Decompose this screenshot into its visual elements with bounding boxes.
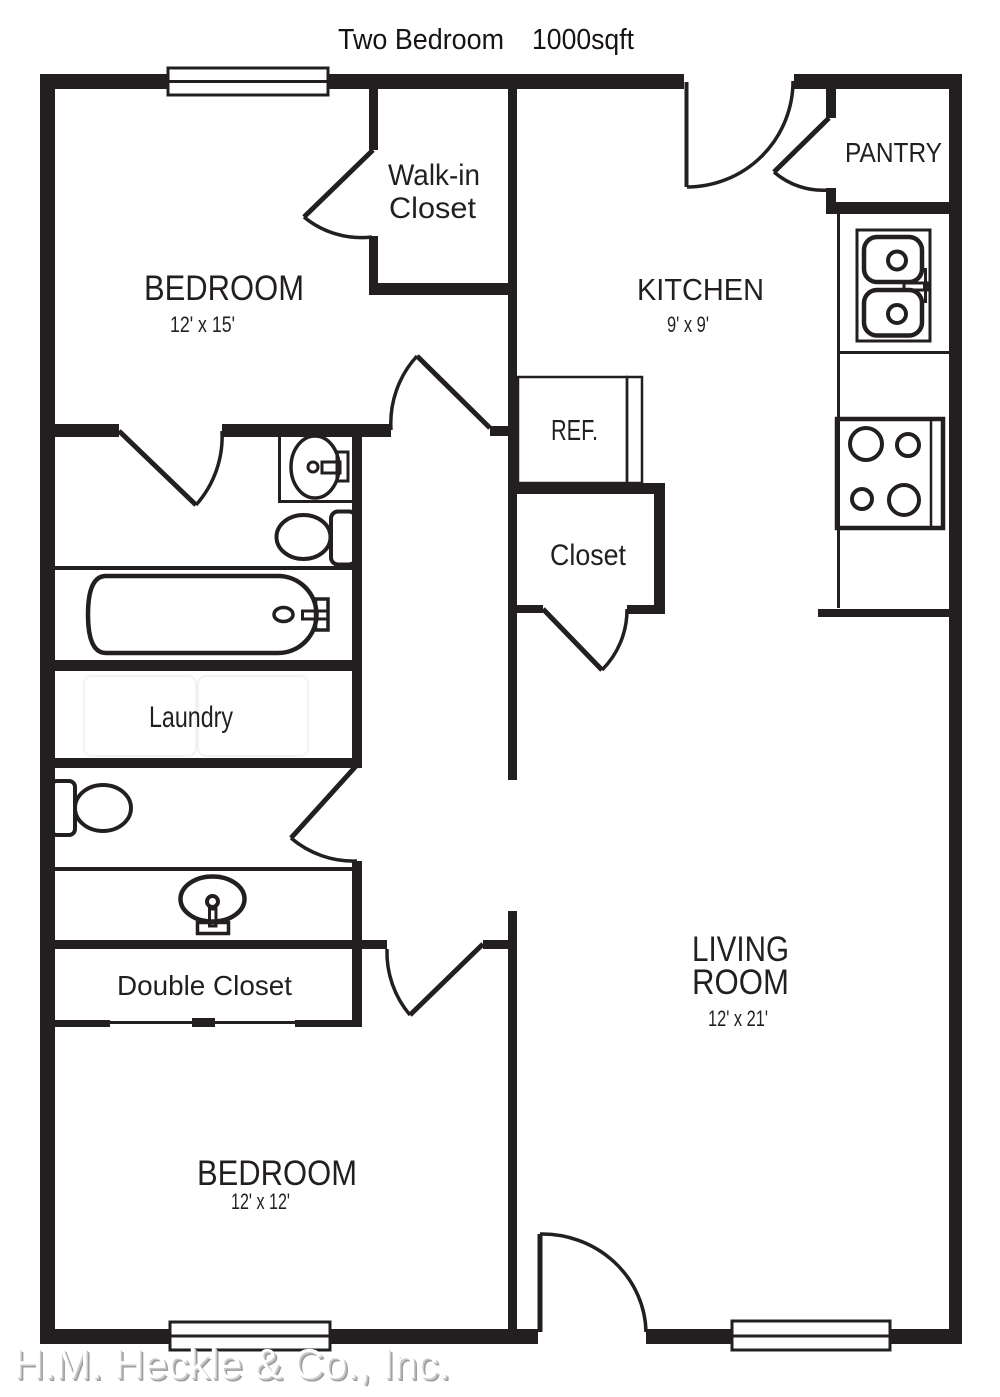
svg-text:Closet: Closet — [389, 192, 477, 225]
svg-text:1000sqft: 1000sqft — [532, 24, 634, 56]
svg-text:Double Closet: Double Closet — [117, 970, 292, 1001]
svg-text:PANTRY: PANTRY — [845, 137, 942, 168]
svg-text:BEDROOM: BEDROOM — [144, 269, 304, 308]
svg-text:Two Bedroom: Two Bedroom — [338, 24, 504, 56]
svg-text:Laundry: Laundry — [149, 701, 233, 734]
svg-text:REF.: REF. — [551, 415, 598, 447]
svg-text:H.M. Heckle & Co., Inc.: H.M. Heckle & Co., Inc. — [13, 1340, 449, 1387]
svg-text:Walk-in: Walk-in — [388, 159, 480, 192]
svg-text:KITCHEN: KITCHEN — [637, 272, 764, 307]
svg-text:12' x 12': 12' x 12' — [231, 1189, 290, 1214]
svg-text:9' x 9': 9' x 9' — [667, 312, 709, 337]
svg-text:BEDROOM: BEDROOM — [197, 1154, 357, 1193]
svg-text:Closet: Closet — [550, 539, 627, 572]
svg-text:ROOM: ROOM — [692, 963, 789, 1002]
svg-text:12' x 21': 12' x 21' — [708, 1006, 768, 1031]
svg-text:12' x 15': 12' x 15' — [170, 312, 235, 337]
